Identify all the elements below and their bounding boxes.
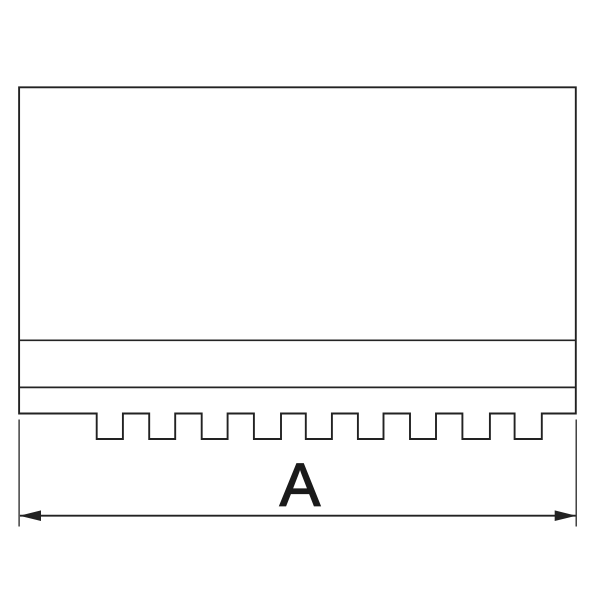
- svg-text:A: A: [280, 451, 321, 519]
